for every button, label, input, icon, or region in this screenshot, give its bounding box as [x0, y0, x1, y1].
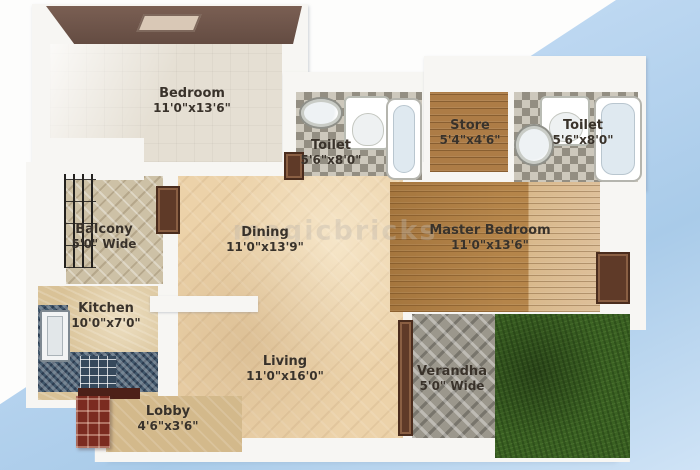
master-bedroom-window-icon: [596, 252, 630, 304]
store-label: Store 5'4"x4'6": [440, 119, 501, 147]
balcony-door-icon: [156, 186, 180, 234]
stove-icon: [80, 356, 116, 392]
lobby-label: Lobby 4'6"x3'6": [138, 405, 199, 433]
fridge-icon: [40, 310, 70, 362]
living-label: Living 11'0"x16'0": [246, 355, 324, 383]
entrance-steps-icon: [76, 396, 110, 448]
master-bedroom-label: Master Bedroom 11'0"x13'6": [429, 224, 550, 252]
bedroom-label: Bedroom 11'0"x13'6": [153, 87, 231, 115]
toilet1-label: Toilet 5'6"x8'0": [301, 139, 362, 167]
sink-icon: [299, 97, 343, 129]
roof-vent-icon: [136, 14, 201, 32]
dining-living-wall-stub: [150, 296, 258, 312]
balcony-railing-icon: [64, 174, 96, 268]
bathtub-icon: [386, 98, 422, 180]
sink-icon: [514, 124, 554, 166]
dining-label: Dining 11'0"x13'9": [226, 226, 304, 254]
toilet2-label: Toilet 5'6"x8'0": [553, 119, 614, 147]
verandha-door-icon: [398, 320, 413, 436]
kitchen-label: Kitchen 10'0"x7'0": [71, 302, 140, 330]
balcony-label: Balcony 5'0" Wide: [72, 223, 137, 251]
floor-plan: magicbricks Bedroom 11'0"x13'6" Toilet 5…: [0, 0, 700, 470]
verandha-label: Verandha 5'0" Wide: [417, 365, 487, 393]
lawn: [495, 314, 630, 458]
